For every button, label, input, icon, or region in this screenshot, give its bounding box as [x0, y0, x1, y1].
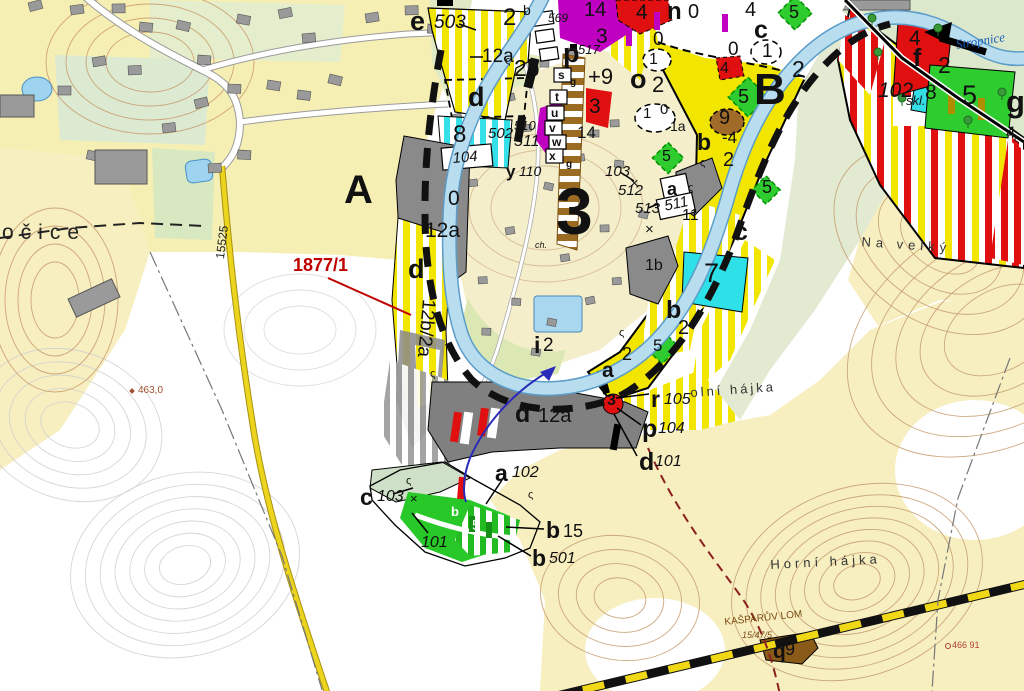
map-viewport[interactable]: e5032b56912a2bd8502510511104y110p517stuv…: [0, 0, 1024, 691]
map-graphics: [0, 0, 1024, 691]
